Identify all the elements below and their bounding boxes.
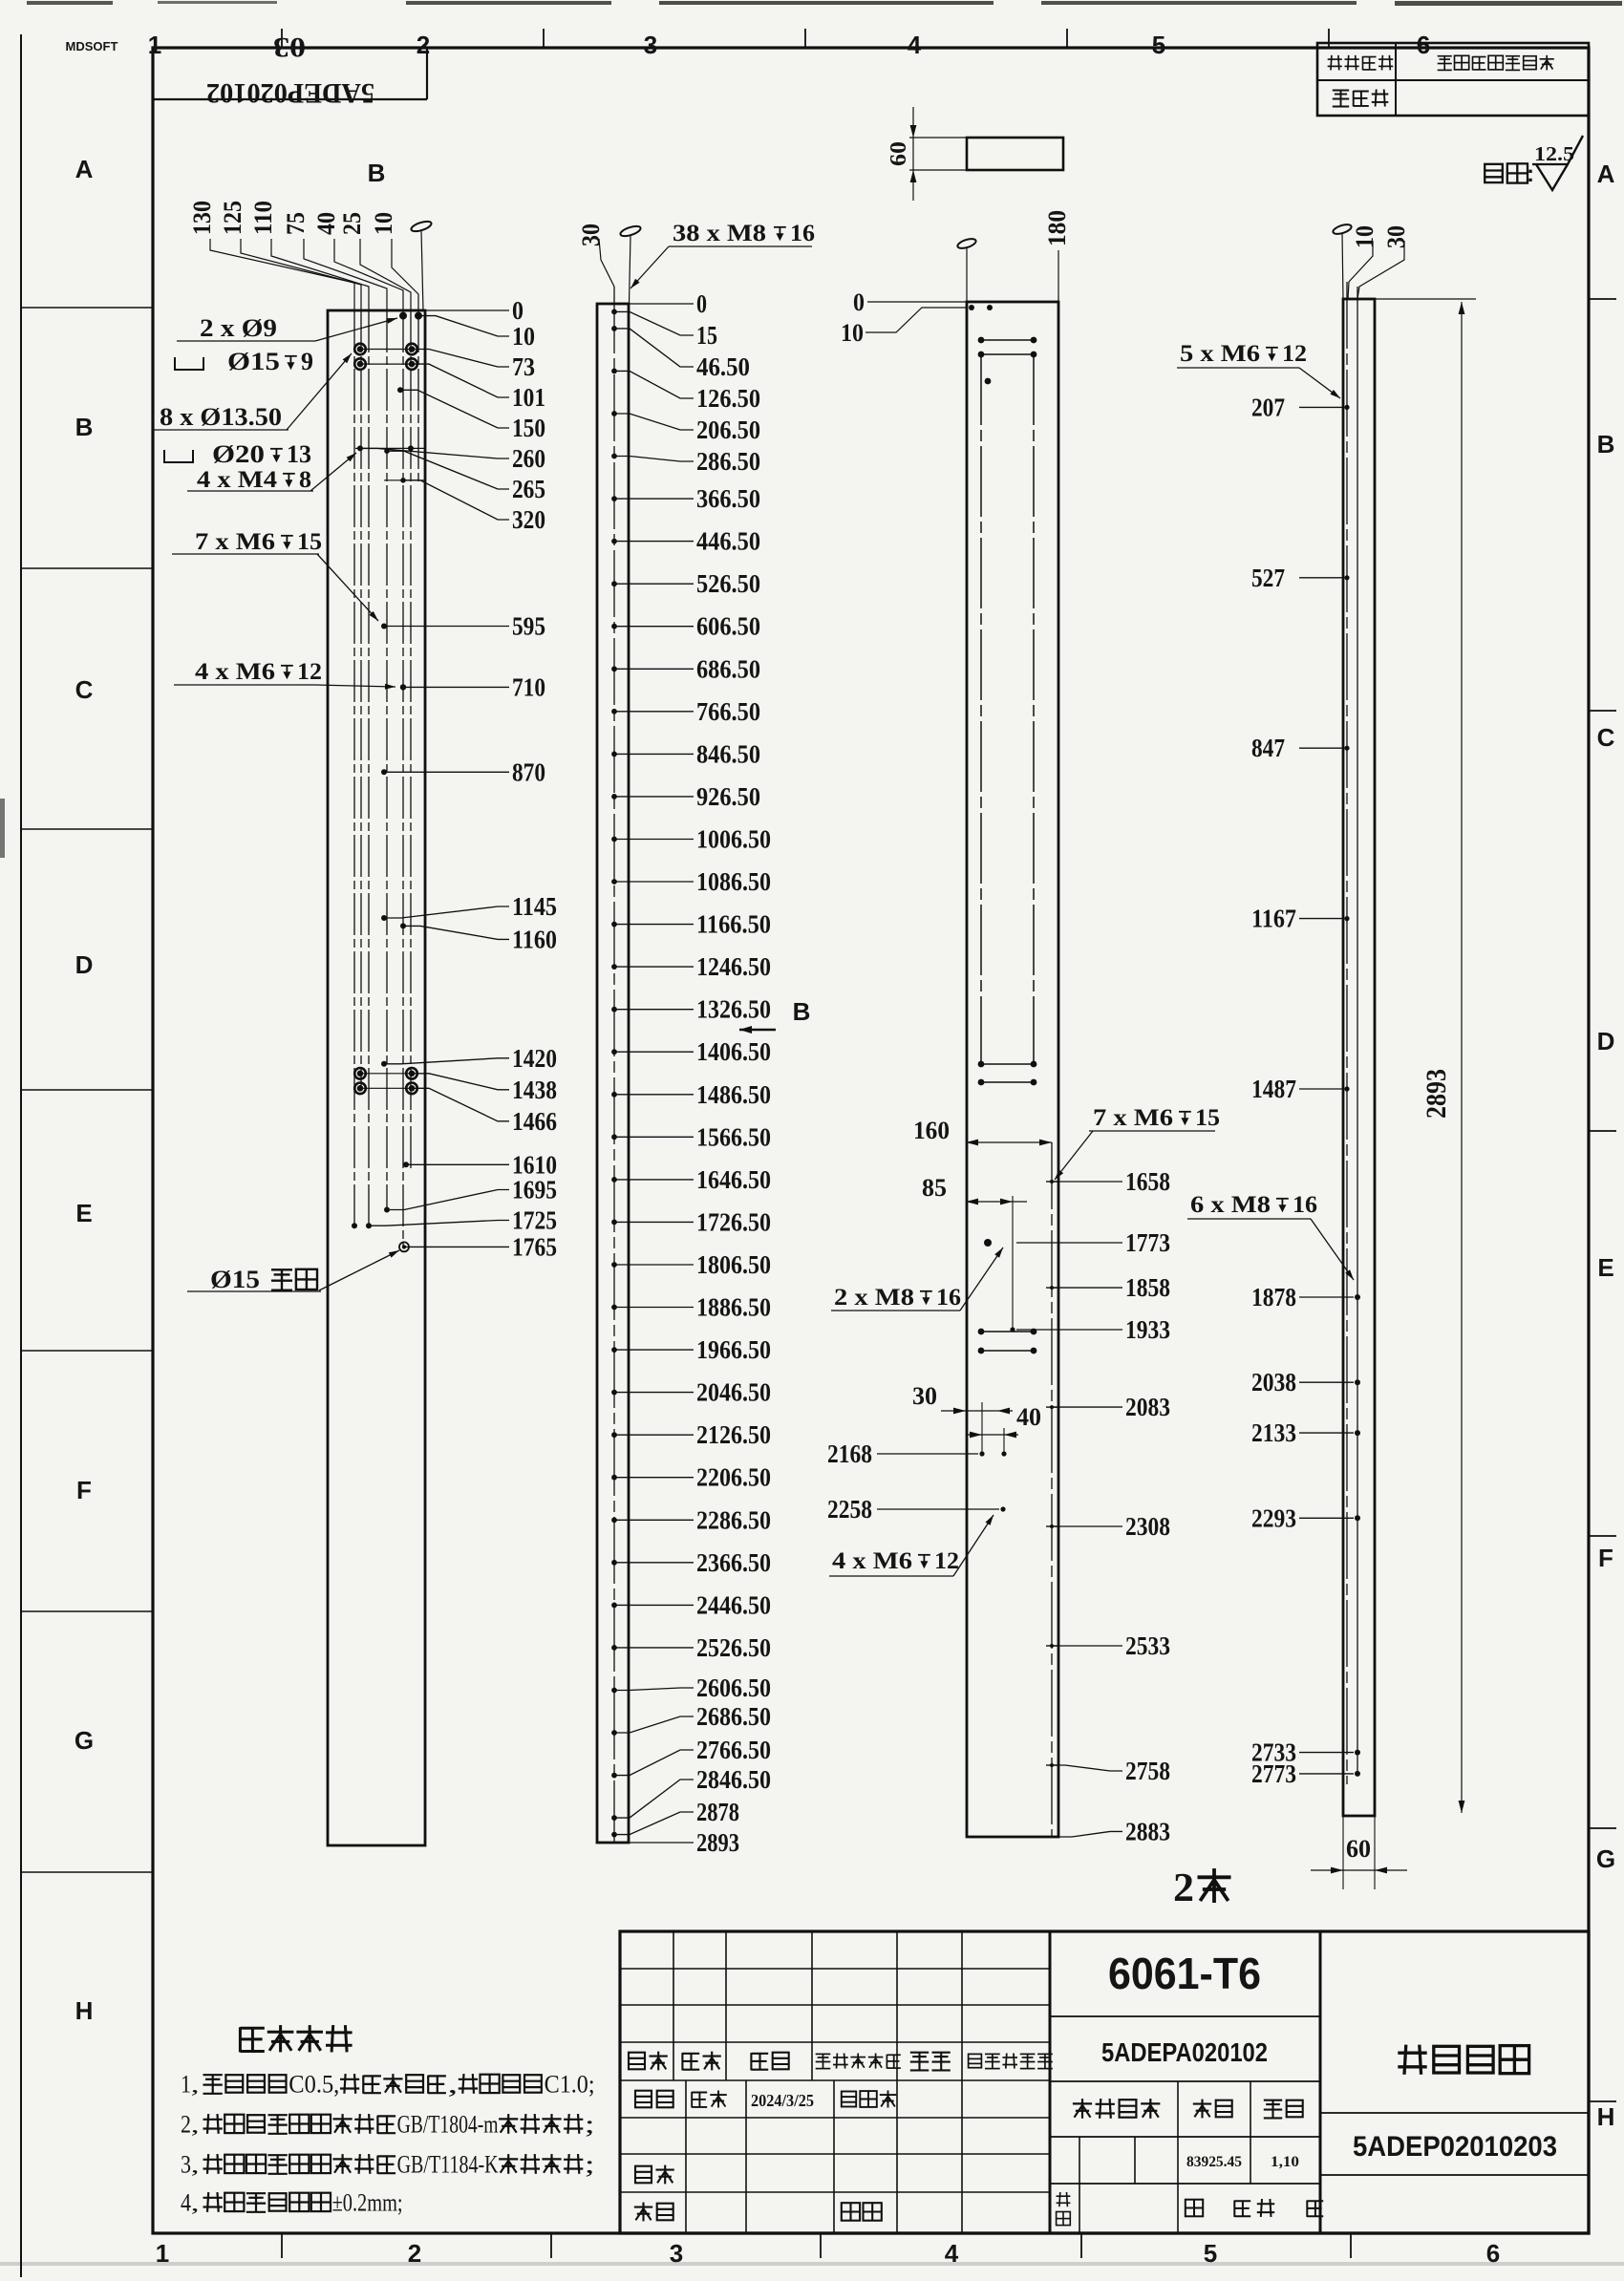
svg-text:1858: 1858 [1125, 1273, 1170, 1302]
svg-text:2308: 2308 [1125, 1512, 1170, 1541]
svg-text:12: 12 [934, 1548, 959, 1574]
svg-text:260: 260 [512, 444, 545, 473]
svg-text:4: 4 [945, 2239, 959, 2268]
svg-text:A: A [1597, 160, 1615, 188]
svg-text:85: 85 [922, 1174, 947, 1202]
svg-text:;: ; [585, 2110, 595, 2138]
svg-text:1: 1 [148, 31, 161, 59]
svg-text:15: 15 [297, 529, 322, 555]
svg-text:8: 8 [299, 467, 311, 493]
svg-text:16: 16 [790, 221, 815, 246]
svg-text:2: 2 [408, 2239, 421, 2268]
svg-text:1646.50: 1646.50 [696, 1165, 771, 1194]
svg-text:150: 150 [512, 414, 545, 442]
svg-text:1438: 1438 [512, 1076, 557, 1104]
svg-text:2526.50: 2526.50 [696, 1633, 771, 1662]
svg-text:6 x M8: 6 x M8 [1190, 1192, 1271, 1218]
svg-text:B: B [793, 997, 811, 1026]
svg-text:1966.50: 1966.50 [696, 1335, 771, 1364]
svg-text:C1.0;: C1.0; [545, 2070, 595, 2098]
svg-text:2168: 2168 [827, 1439, 872, 1468]
svg-text:C: C [75, 675, 94, 704]
svg-text:,: , [191, 2191, 200, 2215]
svg-text:2893: 2893 [1421, 1069, 1452, 1119]
svg-text:2133: 2133 [1251, 1418, 1296, 1447]
svg-text:D: D [1597, 1027, 1615, 1055]
svg-text:710: 710 [512, 672, 545, 701]
svg-text:G: G [75, 1726, 94, 1755]
svg-text:206.50: 206.50 [696, 416, 760, 444]
svg-text:2 x M8: 2 x M8 [834, 1285, 914, 1311]
svg-text:E: E [1597, 1253, 1613, 1282]
svg-text:1167: 1167 [1251, 905, 1296, 933]
svg-text:GB/T1804-m: GB/T1804-m [397, 2110, 499, 2138]
svg-text:320: 320 [512, 505, 545, 534]
svg-text:13: 13 [287, 440, 311, 468]
svg-text:6: 6 [1486, 2239, 1500, 2268]
svg-text:2846.50: 2846.50 [696, 1765, 771, 1794]
svg-text:1006.50: 1006.50 [696, 825, 771, 854]
svg-text:30: 30 [912, 1382, 937, 1410]
svg-text:2: 2 [1173, 1866, 1194, 1910]
svg-text:16: 16 [1293, 1192, 1317, 1218]
svg-text:60: 60 [887, 141, 911, 166]
svg-text:2883: 2883 [1125, 1817, 1170, 1845]
svg-text:G: G [1596, 1844, 1615, 1873]
svg-text:606.50: 606.50 [696, 612, 760, 641]
svg-text:4 x M4: 4 x M4 [197, 467, 278, 493]
svg-text:1878: 1878 [1251, 1283, 1296, 1311]
svg-text:2: 2 [181, 2110, 191, 2138]
svg-text:1: 1 [156, 2239, 169, 2268]
svg-text:10: 10 [1351, 225, 1378, 248]
svg-text:C: C [1597, 723, 1615, 752]
svg-text:12: 12 [297, 659, 322, 685]
svg-text:40: 40 [312, 212, 340, 235]
svg-text:3: 3 [644, 31, 657, 59]
svg-text:2258: 2258 [827, 1495, 872, 1524]
svg-text:Ø15: Ø15 [210, 1266, 260, 1293]
svg-text:2083: 2083 [1125, 1393, 1170, 1421]
svg-text:2366.50: 2366.50 [696, 1548, 771, 1577]
svg-text:101: 101 [512, 383, 545, 412]
svg-text:9: 9 [301, 348, 313, 375]
svg-text:926.50: 926.50 [696, 782, 760, 811]
svg-text:846.50: 846.50 [696, 739, 760, 768]
svg-text:0: 0 [696, 289, 707, 318]
svg-text:4 x M6: 4 x M6 [832, 1548, 912, 1574]
svg-text:527: 527 [1251, 564, 1285, 592]
svg-text:130: 130 [188, 201, 216, 235]
svg-text:1145: 1145 [512, 892, 557, 921]
svg-text:1086.50: 1086.50 [696, 867, 771, 896]
svg-text:2533: 2533 [1125, 1631, 1170, 1660]
svg-text:3: 3 [670, 2239, 683, 2268]
svg-text:2766.50: 2766.50 [696, 1736, 771, 1764]
svg-text:5ADEP02010203: 5ADEP02010203 [1353, 2131, 1557, 2163]
svg-text:2286.50: 2286.50 [696, 1505, 771, 1534]
svg-text:0: 0 [512, 296, 524, 325]
svg-text:10: 10 [841, 319, 864, 347]
svg-text:1487: 1487 [1251, 1075, 1296, 1103]
svg-text:6: 6 [1417, 31, 1430, 59]
svg-text:60: 60 [1346, 1835, 1371, 1863]
svg-text:7 x M6: 7 x M6 [1093, 1105, 1173, 1131]
svg-text:6061-T6: 6061-T6 [1108, 1949, 1261, 1998]
svg-text:5 x M6: 5 x M6 [1180, 341, 1260, 367]
svg-text:1: 1 [181, 2070, 191, 2098]
svg-text:1160: 1160 [512, 925, 557, 953]
svg-text:12: 12 [1282, 341, 1307, 367]
svg-text:2 x Ø9: 2 x Ø9 [200, 314, 277, 342]
svg-text:5ADEPA020102: 5ADEPA020102 [1101, 2037, 1268, 2067]
svg-text:75: 75 [282, 212, 310, 235]
svg-text:15: 15 [1195, 1105, 1220, 1131]
svg-text:207: 207 [1251, 393, 1285, 421]
svg-text:,: , [191, 2153, 200, 2177]
svg-text:1566.50: 1566.50 [696, 1122, 771, 1151]
svg-text:38 x M8: 38 x M8 [673, 221, 766, 246]
svg-text:15: 15 [696, 321, 717, 350]
svg-text:4: 4 [181, 2188, 191, 2216]
svg-text:2773: 2773 [1251, 1759, 1296, 1788]
svg-text:16: 16 [936, 1285, 961, 1311]
svg-text:366.50: 366.50 [696, 484, 760, 513]
svg-text:,: , [447, 2070, 458, 2098]
svg-text:7 x M6: 7 x M6 [195, 529, 275, 555]
svg-text:25: 25 [338, 212, 366, 235]
svg-text:30: 30 [577, 224, 605, 246]
svg-text:1726.50: 1726.50 [696, 1207, 771, 1236]
svg-text:265: 265 [512, 475, 545, 503]
svg-text:1725: 1725 [512, 1206, 557, 1235]
svg-text:2293: 2293 [1251, 1503, 1296, 1532]
svg-text:C0.5,: C0.5, [288, 2070, 339, 2098]
svg-text:1466: 1466 [512, 1107, 557, 1136]
svg-text:180: 180 [1043, 210, 1071, 246]
svg-text:446.50: 446.50 [696, 527, 760, 556]
svg-text:B: B [75, 413, 94, 441]
svg-text:526.50: 526.50 [696, 569, 760, 598]
svg-text:2758: 2758 [1125, 1757, 1170, 1785]
svg-text:5ADEP020102: 5ADEP020102 [206, 77, 374, 109]
svg-text:±0.2mm;: ±0.2mm; [332, 2188, 403, 2216]
svg-text:30: 30 [1382, 225, 1410, 248]
svg-text:1806.50: 1806.50 [696, 1250, 771, 1279]
svg-text:1326.50: 1326.50 [696, 995, 771, 1024]
svg-text:,: , [191, 2073, 200, 2097]
svg-text:1246.50: 1246.50 [696, 952, 771, 981]
svg-text:F: F [76, 1476, 92, 1504]
svg-text:2206.50: 2206.50 [696, 1463, 771, 1492]
svg-text:110: 110 [249, 201, 277, 235]
svg-text:286.50: 286.50 [696, 447, 760, 476]
svg-text:5: 5 [1204, 2239, 1217, 2268]
svg-text:4 x M6: 4 x M6 [195, 659, 275, 685]
svg-text:1773: 1773 [1125, 1228, 1170, 1257]
svg-text:73: 73 [512, 352, 535, 381]
svg-text:Ø15: Ø15 [227, 348, 280, 375]
svg-text:A: A [75, 155, 94, 183]
svg-text:5: 5 [1152, 31, 1165, 59]
svg-text:E: E [75, 1199, 92, 1227]
svg-text:2878: 2878 [696, 1798, 739, 1826]
svg-text:1,10: 1,10 [1271, 2154, 1299, 2170]
svg-text:H: H [75, 1996, 94, 2025]
svg-text:1406.50: 1406.50 [696, 1037, 771, 1066]
svg-text:1166.50: 1166.50 [696, 910, 771, 939]
svg-text:;: ; [585, 2150, 595, 2178]
svg-text:1420: 1420 [512, 1044, 557, 1073]
svg-text:766.50: 766.50 [696, 697, 760, 726]
svg-text:2606.50: 2606.50 [696, 1673, 771, 1702]
svg-text:MDSOFT: MDSOFT [66, 39, 118, 53]
svg-text:595: 595 [512, 612, 545, 641]
svg-text:10: 10 [512, 322, 535, 351]
svg-text:10: 10 [370, 212, 397, 235]
svg-text:2893: 2893 [696, 1828, 739, 1857]
svg-text:D: D [75, 950, 94, 979]
svg-text:,: , [191, 2113, 200, 2137]
svg-text:1886.50: 1886.50 [696, 1293, 771, 1322]
svg-text:40: 40 [1016, 1403, 1041, 1431]
svg-text:H: H [1597, 2102, 1615, 2131]
svg-text:F: F [1598, 1544, 1613, 1572]
svg-text:03: 03 [273, 32, 306, 63]
svg-text:1695: 1695 [512, 1176, 557, 1204]
svg-text:3: 3 [181, 2150, 191, 2178]
svg-text:160: 160 [913, 1117, 950, 1144]
svg-text:0: 0 [853, 288, 865, 316]
svg-text:2446.50: 2446.50 [696, 1590, 771, 1619]
svg-text:1765: 1765 [512, 1232, 557, 1261]
svg-text:686.50: 686.50 [696, 654, 760, 683]
svg-text:2126.50: 2126.50 [696, 1420, 771, 1449]
svg-text:Ø20: Ø20 [212, 440, 265, 468]
svg-text:2038: 2038 [1251, 1368, 1296, 1396]
svg-text:847: 847 [1251, 734, 1285, 762]
svg-text:125: 125 [219, 201, 246, 235]
svg-text:1933: 1933 [1125, 1315, 1170, 1344]
svg-text:126.50: 126.50 [696, 384, 760, 413]
svg-text:8 x Ø13.50: 8 x Ø13.50 [160, 403, 282, 431]
svg-text:870: 870 [512, 757, 545, 786]
svg-text:2046.50: 2046.50 [696, 1378, 771, 1407]
svg-text:B: B [1597, 430, 1615, 458]
svg-text:1486.50: 1486.50 [696, 1080, 771, 1109]
svg-text:2686.50: 2686.50 [696, 1702, 771, 1731]
svg-text:GB/T1184-K: GB/T1184-K [397, 2150, 499, 2178]
svg-text:2024/3/25: 2024/3/25 [751, 2091, 814, 2110]
svg-text:83925.45: 83925.45 [1186, 2154, 1242, 2170]
svg-text:B: B [368, 159, 386, 187]
svg-text:4: 4 [908, 31, 922, 59]
svg-text:46.50: 46.50 [696, 352, 750, 381]
svg-text:1658: 1658 [1125, 1167, 1170, 1196]
